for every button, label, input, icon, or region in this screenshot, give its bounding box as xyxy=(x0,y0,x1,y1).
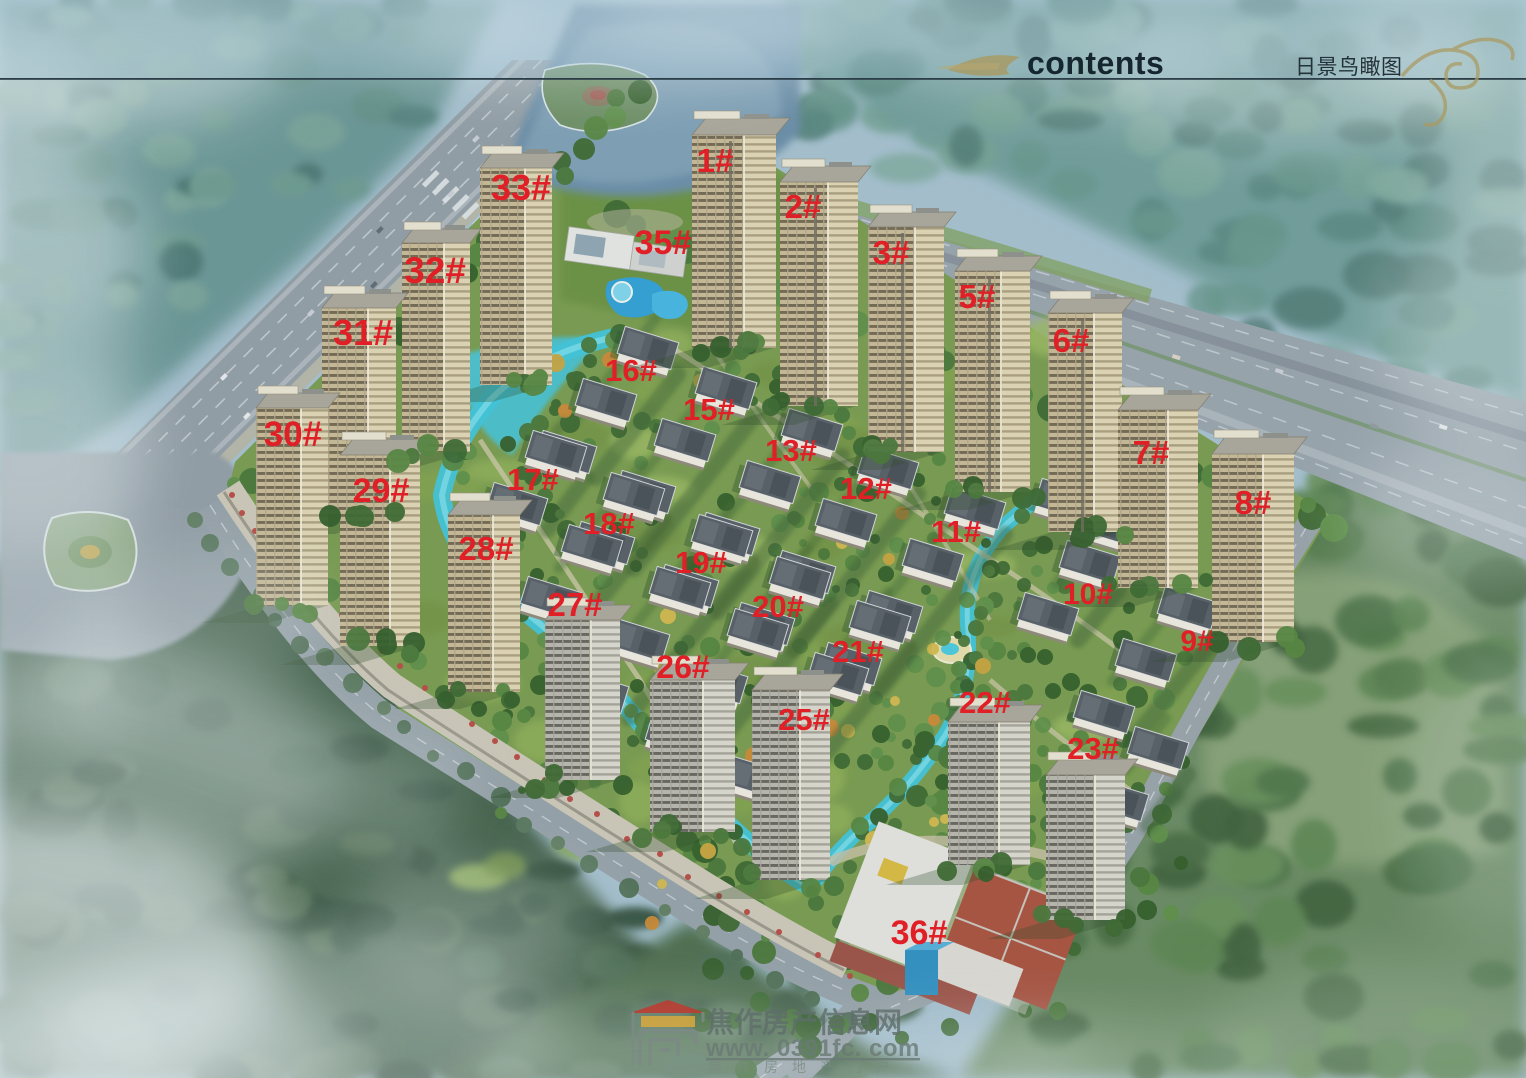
svg-text:www. 0391fc. com: www. 0391fc. com xyxy=(705,1035,920,1062)
svg-text:27#: 27# xyxy=(547,586,602,623)
svg-text:9#: 9# xyxy=(1180,625,1214,658)
svg-text:5#: 5# xyxy=(959,278,996,315)
svg-text:33#: 33# xyxy=(491,167,551,208)
svg-text:13#: 13# xyxy=(765,433,817,468)
svg-text:12#: 12# xyxy=(840,471,892,506)
svg-text:1#: 1# xyxy=(697,142,734,179)
svg-text:16#: 16# xyxy=(605,353,657,388)
svg-text:日景鸟瞰图: 日景鸟瞰图 xyxy=(1295,56,1403,79)
svg-text:3#: 3# xyxy=(873,234,910,271)
svg-text:30#: 30# xyxy=(264,415,322,454)
svg-text:20#: 20# xyxy=(752,589,804,624)
svg-text:19#: 19# xyxy=(675,545,727,580)
svg-text:17#: 17# xyxy=(507,462,559,497)
svg-text:25#: 25# xyxy=(778,702,830,737)
svg-text:36#: 36# xyxy=(891,914,948,952)
svg-text:10#: 10# xyxy=(1063,578,1113,611)
svg-text:22#: 22# xyxy=(959,685,1011,720)
svg-text:21#: 21# xyxy=(832,634,884,669)
svg-text:焦作房产信息网: 焦作房产信息网 xyxy=(706,1006,902,1038)
svg-text:23#: 23# xyxy=(1067,731,1119,766)
svg-text:35#: 35# xyxy=(635,224,692,262)
svg-text:8#: 8# xyxy=(1235,484,1272,521)
svg-text:contents: contents xyxy=(1027,45,1164,81)
svg-text:18#: 18# xyxy=(583,506,635,541)
svg-text:15#: 15# xyxy=(683,392,735,427)
svg-text:2#: 2# xyxy=(785,188,822,225)
svg-text:29#: 29# xyxy=(353,472,410,510)
svg-text:11#: 11# xyxy=(931,514,981,549)
svg-text:6#: 6# xyxy=(1053,322,1090,359)
svg-text:焦作房地产门户: 焦作房地产门户 xyxy=(708,1059,904,1075)
svg-text:32#: 32# xyxy=(404,250,466,291)
svg-text:26#: 26# xyxy=(656,649,710,685)
svg-text:7#: 7# xyxy=(1133,434,1170,471)
svg-text:28#: 28# xyxy=(458,530,513,567)
svg-text:31#: 31# xyxy=(333,312,393,353)
